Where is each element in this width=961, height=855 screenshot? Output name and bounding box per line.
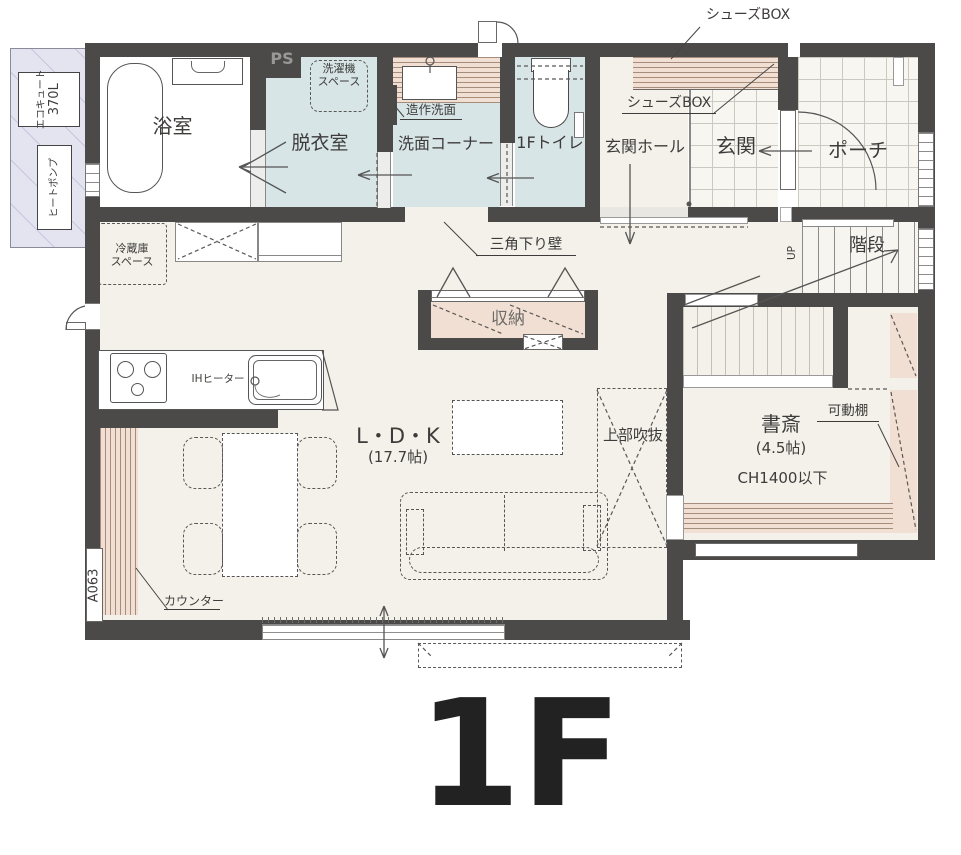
stairs-entry-strip xyxy=(780,207,792,222)
study-step-strip xyxy=(683,375,833,388)
storage-hatch-box xyxy=(523,334,563,350)
backdoor-leaf xyxy=(478,21,497,43)
label-fridge-line2: スペース xyxy=(100,256,164,269)
ldk-bottom-window-ticks xyxy=(262,617,508,623)
room-label-entrance-hall: 玄関ホール xyxy=(600,138,690,157)
wall-kitchen-stub xyxy=(85,410,278,428)
room-label-ldk: L・D・K xyxy=(348,424,448,449)
label-up: UP xyxy=(781,240,803,266)
room-label-storage: 収納 xyxy=(480,309,536,329)
heat-pump-unit: ヒートポンプ xyxy=(37,145,72,230)
label-void-above: 上部吹抜 xyxy=(595,427,671,445)
basin-sink xyxy=(402,66,457,100)
room-label-ldk-size: (17.7帖) xyxy=(348,449,448,467)
kitchen-back-door-leaf xyxy=(66,322,86,330)
bath-door-strip xyxy=(250,130,266,207)
floor-plan-1f: A063 エコキュート 370L ヒートポンプ xyxy=(0,0,961,855)
label-ps: PS xyxy=(263,50,301,69)
label-custom-washbasin: 造作洗面 xyxy=(400,103,462,120)
entrance-door-leaf xyxy=(780,110,796,190)
label-fridge-space: 冷蔵庫 スペース xyxy=(100,243,164,269)
ecocute-label-line2: 370L xyxy=(47,70,62,130)
movable-shelf-main xyxy=(890,390,917,533)
backdoor-arc xyxy=(497,22,518,43)
wall-storage-bottom xyxy=(418,338,598,350)
label-washer-line2: スペース xyxy=(309,76,369,89)
deck-outline xyxy=(418,643,682,668)
label-up-text: UP xyxy=(786,246,798,260)
room-label-toilet: 1Fトイレ xyxy=(512,134,588,153)
dressing-washroom-door-strip xyxy=(377,152,391,208)
wall-top xyxy=(85,43,935,57)
ih-burner-3 xyxy=(131,383,144,396)
room-label-entrance: 玄関 xyxy=(704,135,768,159)
kitchen-sink xyxy=(248,355,322,405)
toilet-bowl xyxy=(533,70,569,128)
dining-chair-3 xyxy=(297,437,337,489)
heat-pump-label: ヒートポンプ xyxy=(49,158,61,218)
wall-ldk-study xyxy=(667,300,683,620)
porch-side-window xyxy=(918,132,934,207)
ih-burner-2 xyxy=(144,361,161,378)
room-label-dressing: 脱衣室 xyxy=(274,132,366,154)
room-label-bath: 浴室 xyxy=(130,115,215,139)
label-shoes-box-lower: シューズBOX xyxy=(622,95,716,114)
label-shoes-box-top: シューズBOX xyxy=(701,7,795,24)
ecocute-label: エコキュート 370L xyxy=(36,70,62,130)
study-door-opening xyxy=(666,495,684,540)
room-label-washroom: 洗面コーナー xyxy=(394,135,498,154)
ih-burner-1 xyxy=(117,361,134,378)
bath-vanity-bowl xyxy=(191,61,225,73)
study-upper-dashed-area xyxy=(683,307,833,375)
shoes-box-cabinet xyxy=(633,57,778,90)
sofa-center-line xyxy=(504,495,505,551)
bath-vanity xyxy=(172,58,243,85)
label-washer-space: 洗濯機 スペース xyxy=(309,63,369,89)
entrance-hall-step-edge xyxy=(600,217,748,224)
label-study-ceiling: CH1400以下 xyxy=(714,470,851,488)
porch-wall-gap xyxy=(788,43,800,57)
wall-sanitary-bottom-right xyxy=(488,207,600,222)
kitchen-back-door-gap xyxy=(85,303,100,330)
ecocute-label-line1: エコキュート xyxy=(36,70,48,130)
ih-cooktop xyxy=(110,353,167,403)
bath-left-window xyxy=(85,163,100,197)
dining-chair-4 xyxy=(297,523,337,575)
label-movable-shelf: 可動棚 xyxy=(817,404,879,422)
window-code-box: A063 xyxy=(86,548,103,622)
kitchen-sink-basin xyxy=(253,360,317,400)
window-code-label: A063 xyxy=(87,568,102,602)
void-dashed-rect xyxy=(597,388,667,548)
label-triangle-drop-wall: 三角下り壁 xyxy=(476,237,576,256)
wall-dressing-washroom xyxy=(377,57,393,152)
study-bottom-window xyxy=(695,543,858,557)
floor-title: 1F xyxy=(385,677,655,832)
label-ih-heater: IHヒーター xyxy=(187,373,249,385)
room-label-study: 書斎 xyxy=(749,413,813,437)
coffee-table xyxy=(452,400,563,455)
stairs-top-rail xyxy=(802,219,894,227)
label-counter: カウンター xyxy=(164,594,220,610)
room-label-study-size: (4.5帖) xyxy=(741,440,821,458)
side-counter xyxy=(100,428,138,615)
porch-pillar-box xyxy=(893,57,904,86)
backdoor-gap xyxy=(478,43,502,57)
stairs-side-window xyxy=(918,228,934,290)
wall-washroom-toilet xyxy=(500,57,515,143)
stairs-landing-opening xyxy=(685,294,758,306)
entrance-hall-step xyxy=(600,207,688,217)
ecocute-unit: エコキュート 370L xyxy=(18,72,80,127)
dining-chair-2 xyxy=(183,523,223,575)
wall-toilet-hall xyxy=(585,57,600,207)
room-label-porch: ポーチ xyxy=(816,139,900,163)
dining-table xyxy=(222,433,298,577)
movable-shelf-upper xyxy=(890,313,917,378)
wall-sanitary-bottom-left xyxy=(100,207,405,222)
study-desk xyxy=(683,503,893,533)
room-label-stairs: 階段 xyxy=(835,235,899,256)
sofa xyxy=(400,492,608,580)
ldk-bottom-window xyxy=(262,624,505,640)
kitchen-cabinet-left xyxy=(175,222,258,262)
dining-chair-1 xyxy=(183,437,223,489)
basin-towel-bar xyxy=(393,85,397,125)
wall-study-inner xyxy=(833,307,848,388)
kitchen-cabinet-right xyxy=(258,222,342,262)
storage-sliding-doors xyxy=(431,290,585,302)
